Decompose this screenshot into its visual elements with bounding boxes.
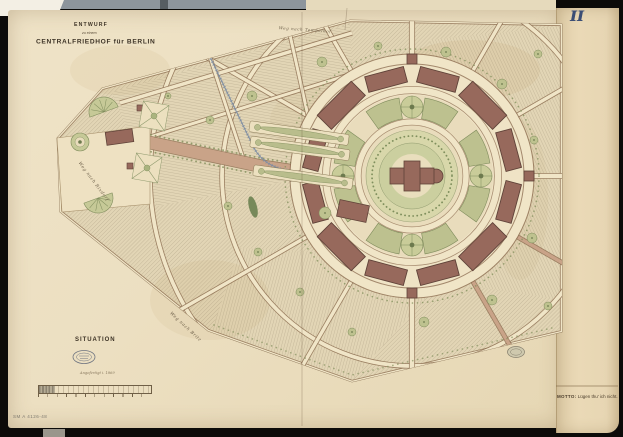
scale-bar-ticks — [38, 394, 151, 397]
x-parterre-garden — [132, 153, 162, 183]
handwritten-note: Angefertigt i. 1869 — [80, 371, 115, 375]
motto-line: MOTTO: Lügen thu' ich nicht. — [557, 394, 618, 399]
gate-pavilion — [407, 288, 417, 298]
motto-prefix: MOTTO: — [557, 394, 576, 399]
scale-bar — [38, 385, 152, 394]
motto-text: Lügen thu' ich nicht. — [578, 394, 618, 399]
inventory-number: SM A 4126-48 — [13, 414, 47, 419]
map-title: ENTWURF — [74, 22, 108, 28]
map-subtitle: zu einem — [82, 31, 97, 35]
gate-pavilion — [407, 54, 417, 64]
oval-collection-stamp — [73, 351, 95, 364]
rosette-garden — [71, 133, 89, 151]
circular-bosquet — [401, 96, 423, 118]
center-fold — [301, 12, 303, 426]
circular-bosquet — [470, 165, 492, 187]
situation-label: SITUATION — [75, 336, 116, 343]
circular-bosquet — [401, 234, 423, 256]
round-collection-stamp — [508, 347, 525, 358]
scale-bar-subdivision — [39, 386, 55, 393]
scanned-map-page: ENTWURF zu einem CENTRALFRIEDHOF für BER… — [0, 0, 623, 437]
plate-number: II — [570, 9, 584, 25]
gate-pavilion — [524, 171, 534, 181]
map-title-main: CENTRALFRIEDHOF für BERLIN — [36, 38, 155, 45]
x-parterre-garden — [139, 101, 169, 131]
